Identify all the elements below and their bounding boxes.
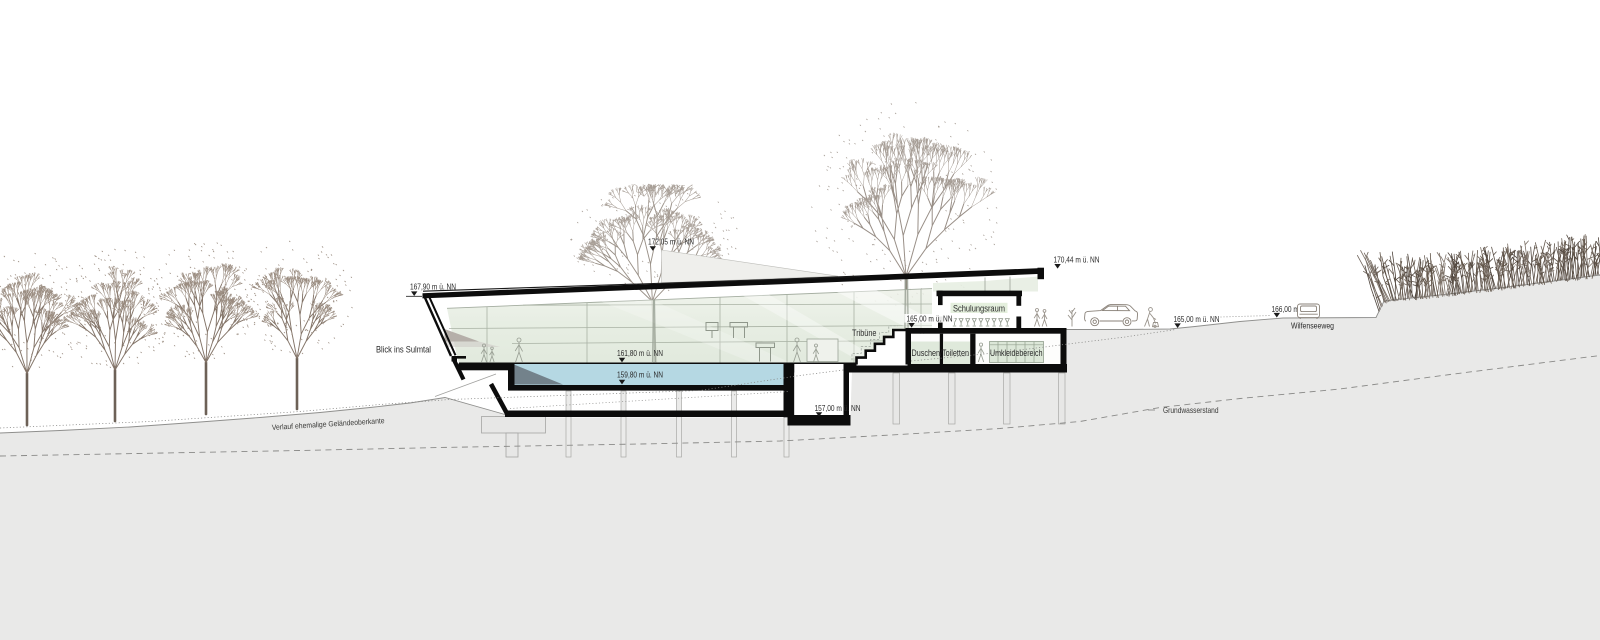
svg-text:Schulungsraum: Schulungsraum [953,303,1005,313]
svg-text:Duschen/Toiletten: Duschen/Toiletten [912,348,970,358]
svg-text:159,80 m ü. NN: 159,80 m ü. NN [617,369,663,379]
svg-text:167,90 m ü. NN: 167,90 m ü. NN [410,282,456,292]
svg-text:165,00 m ü. NN: 165,00 m ü. NN [907,313,953,323]
svg-text:170,44 m ü. NN: 170,44 m ü. NN [1054,254,1100,264]
svg-text:161,80 m ü. NN: 161,80 m ü. NN [617,348,663,358]
svg-text:Umkleidebereich: Umkleidebereich [990,348,1043,358]
svg-text:165,00 m ü. NN: 165,00 m ü. NN [1174,314,1220,324]
svg-text:Wilfenseeweg: Wilfenseeweg [1291,320,1334,330]
svg-text:157,00 m ü. NN: 157,00 m ü. NN [815,403,861,413]
svg-text:Blick ins Sulmtal: Blick ins Sulmtal [376,345,431,355]
svg-text:Grundwasserstand: Grundwasserstand [1163,405,1219,415]
svg-text:Tribüne: Tribüne [852,328,877,338]
svg-text:172,05 m ü. NN: 172,05 m ü. NN [648,237,694,247]
